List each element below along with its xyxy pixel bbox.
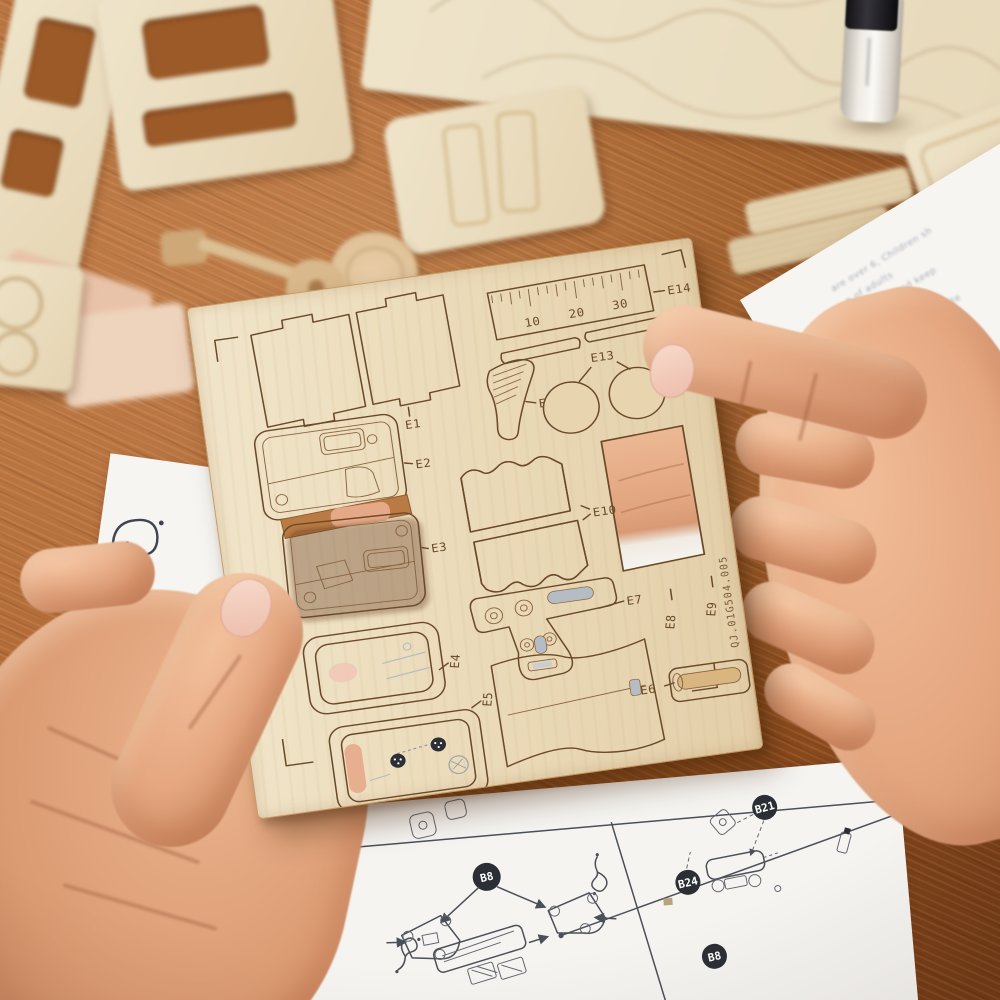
part-label-e5: E5 bbox=[480, 691, 496, 706]
part-label-e13: E13 bbox=[590, 348, 616, 365]
part-label-e14: E14 bbox=[666, 281, 692, 298]
part-bowtie-panel bbox=[491, 638, 666, 767]
wooden-sheet-circle-cuts bbox=[0, 256, 84, 392]
photo-scene: are over 6, Children sh e of adults ange… bbox=[0, 0, 1000, 1000]
wooden-panel-piece bbox=[96, 0, 356, 192]
flower-icon bbox=[707, 807, 738, 838]
chassis-part-sketch bbox=[432, 924, 534, 997]
part-label-e3: E3 bbox=[430, 540, 448, 555]
step-b21-b24: B21 B24 bbox=[655, 794, 786, 906]
step-b8: B8 bbox=[381, 852, 621, 1000]
scroll-ornament-icon bbox=[578, 853, 614, 896]
ruler-number-30: 30 bbox=[611, 296, 629, 312]
part-label-e2: E2 bbox=[415, 456, 433, 471]
labels-e8-e9: E8 E9 bbox=[656, 576, 722, 632]
part-e4-window-frame: E4 bbox=[301, 617, 468, 716]
part-label-e9: E9 bbox=[704, 601, 720, 616]
part-e1-panels: E1 bbox=[248, 288, 465, 451]
panel-slot-cutout bbox=[142, 91, 298, 148]
sheet-cutout bbox=[23, 17, 97, 109]
part-label-e8: E8 bbox=[663, 614, 679, 629]
circle-cut-engrave bbox=[0, 275, 45, 332]
part-e10-combs: E10 bbox=[460, 447, 626, 594]
part-label-e4: E4 bbox=[447, 653, 463, 668]
clamp-part-sketch bbox=[546, 891, 608, 942]
seat-slot-engrave bbox=[442, 123, 490, 226]
wood-bit-sketch bbox=[663, 898, 673, 906]
cutout-window-finger bbox=[601, 425, 705, 571]
part-label-e6: E6 bbox=[639, 682, 657, 697]
bottle-label-text bbox=[865, 38, 871, 86]
seat-slot-engrave bbox=[496, 111, 539, 213]
sheet-cutout bbox=[0, 128, 65, 198]
part-label-e7: E7 bbox=[626, 592, 644, 607]
axle-part-sketch bbox=[705, 847, 784, 895]
clamp-part-sketch bbox=[399, 913, 462, 966]
part-e6-dowel: E6 bbox=[638, 658, 751, 706]
corner-icons bbox=[407, 798, 469, 840]
circle-cut-engrave bbox=[0, 329, 39, 377]
part-label-e1: E1 bbox=[404, 416, 422, 431]
ruler-number-10: 10 bbox=[523, 314, 541, 330]
glue-bottle-cap bbox=[845, 0, 899, 31]
part-e7-dashboard: E7 bbox=[469, 573, 652, 687]
ruler-number-20: 20 bbox=[568, 305, 586, 321]
panel-window-cutout bbox=[141, 4, 270, 80]
sheet-serial-number: QJ.01G504.005 bbox=[718, 555, 742, 648]
